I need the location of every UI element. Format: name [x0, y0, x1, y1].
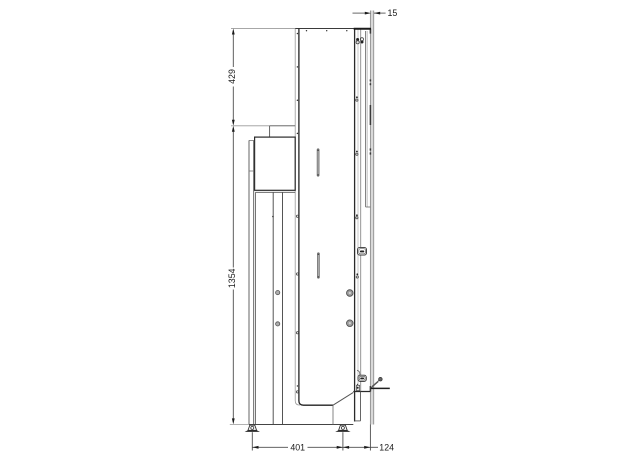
svg-text:401: 401 — [290, 442, 305, 452]
svg-text:124: 124 — [379, 442, 394, 452]
svg-text:1354: 1354 — [227, 268, 237, 288]
svg-text:429: 429 — [227, 69, 237, 84]
svg-text:15: 15 — [388, 8, 398, 18]
